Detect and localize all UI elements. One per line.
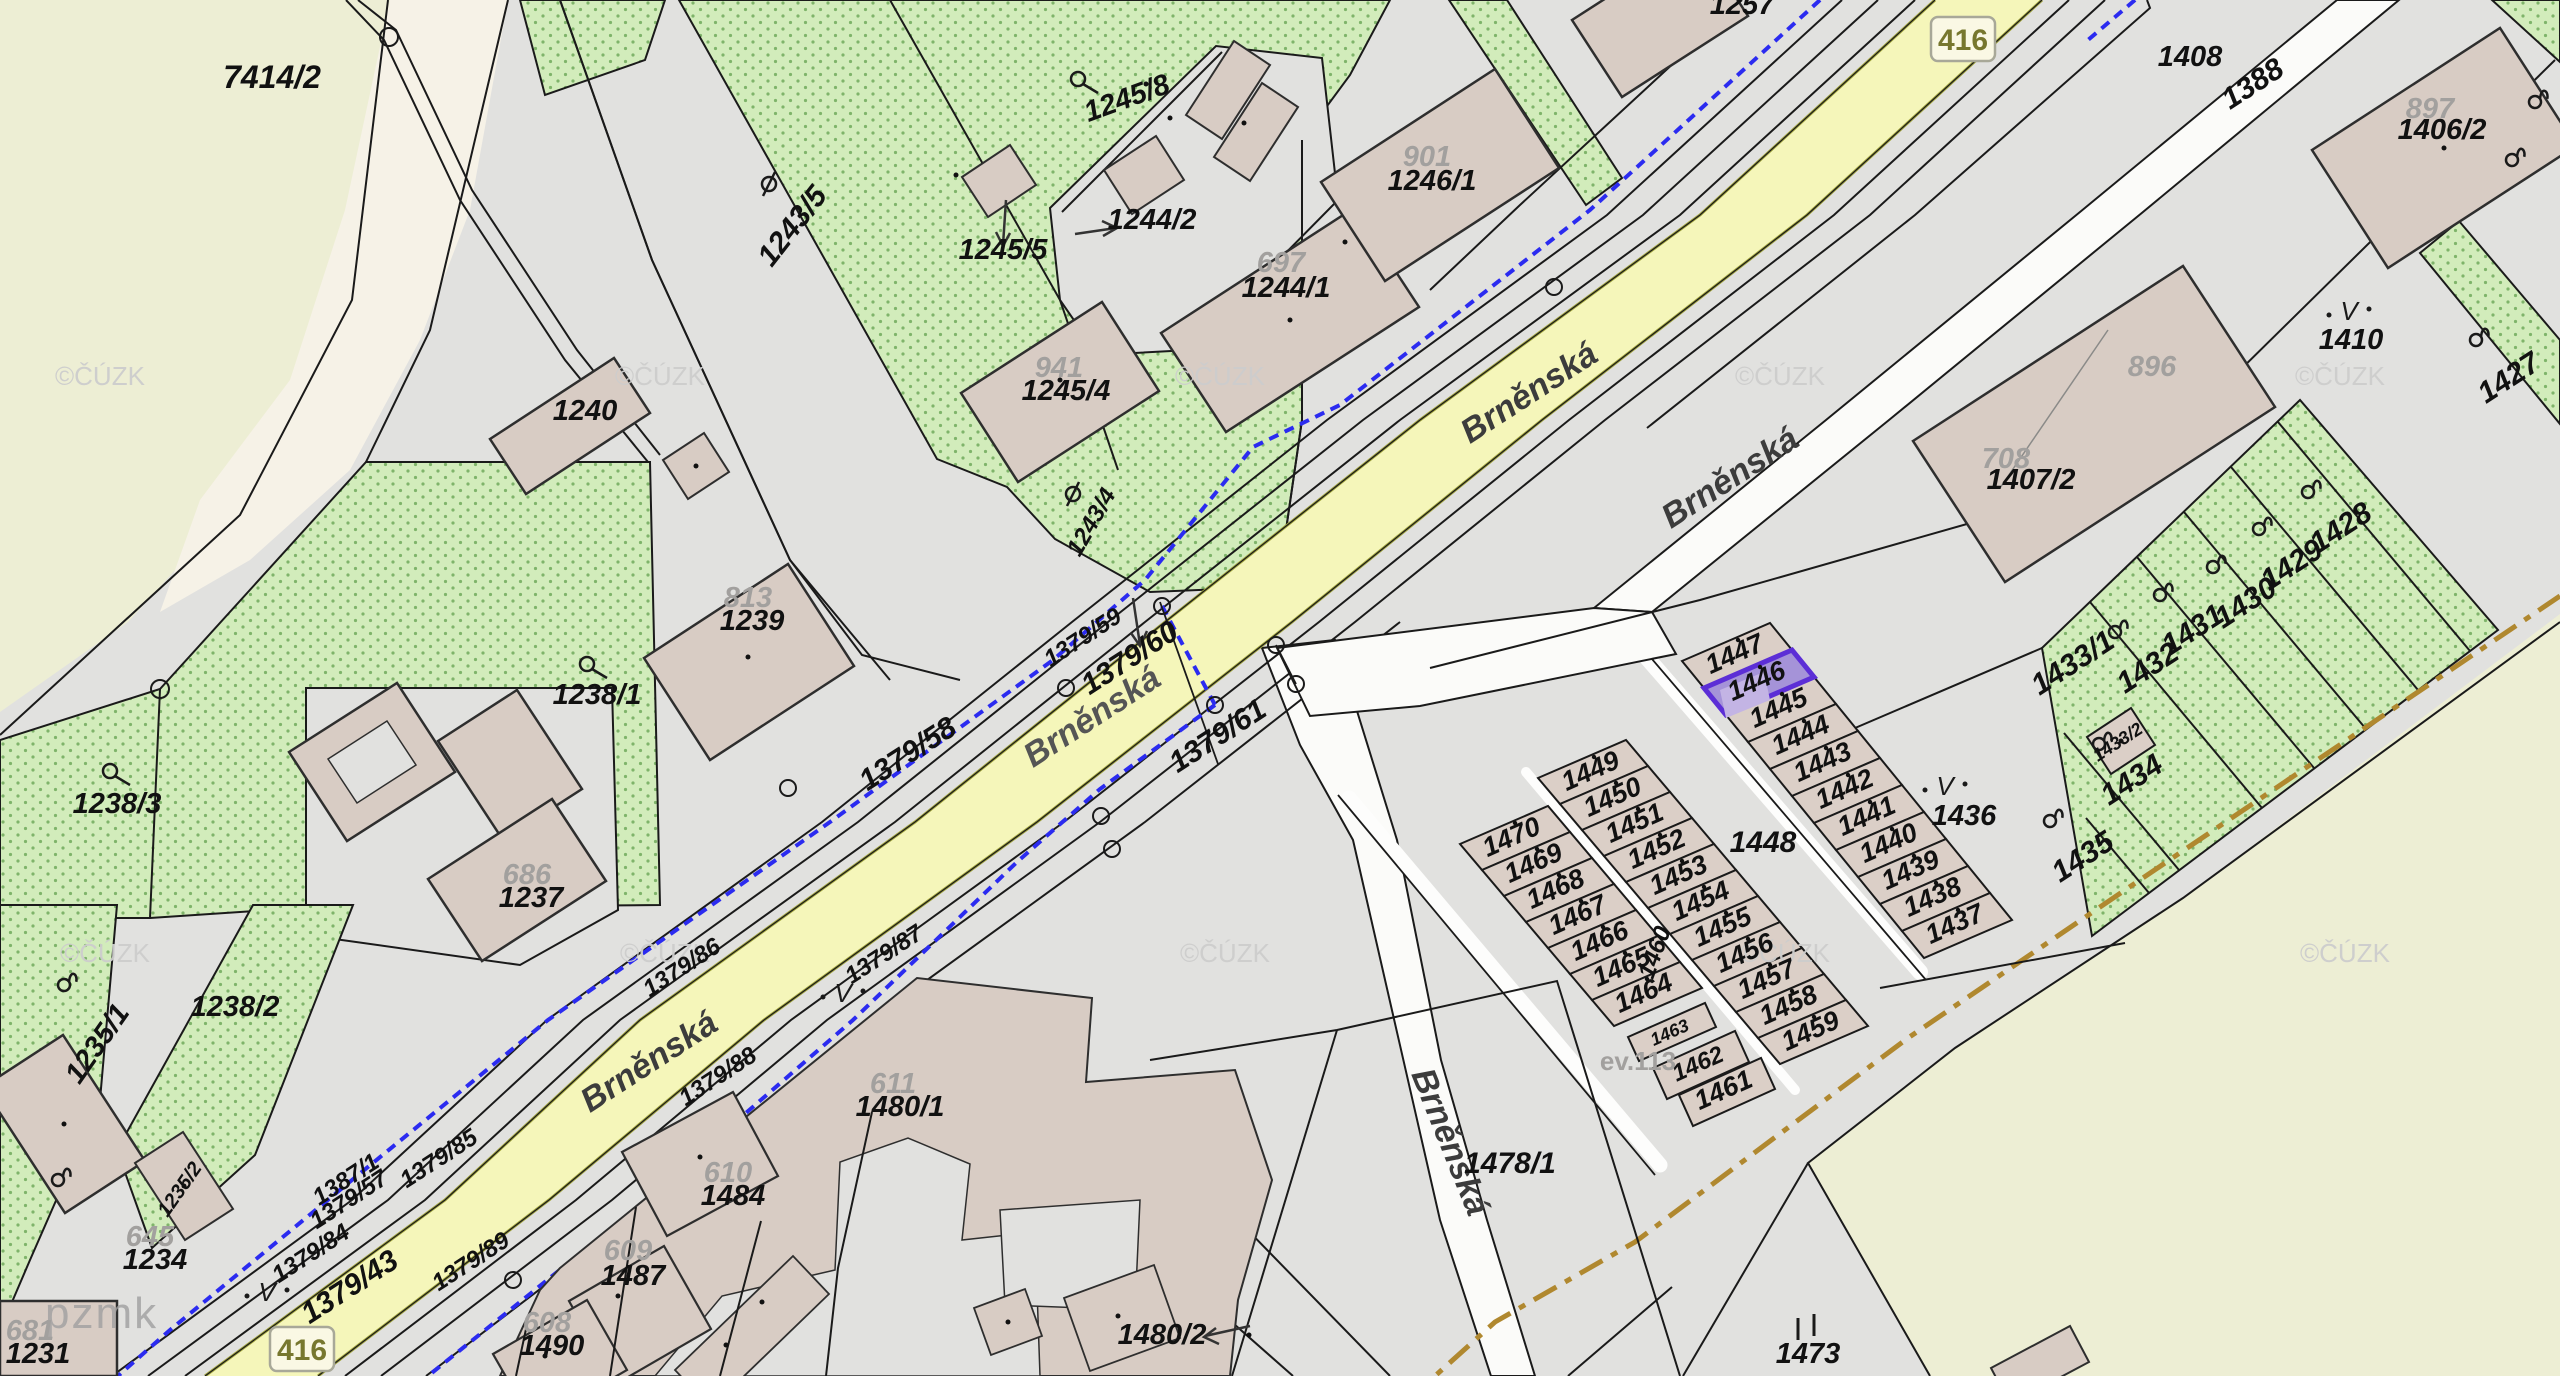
svg-text:V: V <box>2340 296 2360 326</box>
svg-text:1231: 1231 <box>6 1338 71 1370</box>
svg-text:ev.113: ev.113 <box>1600 1046 1676 1076</box>
svg-text:©ČÚZK: ©ČÚZK <box>1735 361 1826 391</box>
svg-text:1238/3: 1238/3 <box>73 788 162 820</box>
svg-text:1408: 1408 <box>2158 41 2223 73</box>
svg-text:1473: 1473 <box>1776 1338 1841 1370</box>
svg-text:1238/1: 1238/1 <box>553 679 642 711</box>
svg-text:416: 416 <box>1938 24 1988 57</box>
svg-text:1244/1: 1244/1 <box>1242 272 1331 304</box>
svg-text:1239: 1239 <box>720 605 785 637</box>
svg-text:416: 416 <box>277 1334 327 1367</box>
svg-text:pzmk: pzmk <box>45 1289 158 1338</box>
svg-text:1234: 1234 <box>123 1244 188 1276</box>
svg-text:©ČÚZK: ©ČÚZK <box>1175 361 1266 391</box>
svg-text:V: V <box>258 1277 278 1307</box>
svg-text:©ČÚZK: ©ČÚZK <box>615 361 706 391</box>
svg-text:1490: 1490 <box>520 1330 585 1362</box>
svg-text:1478/1: 1478/1 <box>1464 1147 1556 1180</box>
svg-text:©ČÚZK: ©ČÚZK <box>55 361 146 391</box>
svg-text:©ČÚZK: ©ČÚZK <box>2300 938 2391 968</box>
svg-text:1410: 1410 <box>2319 324 2384 356</box>
svg-text:7414/2: 7414/2 <box>223 59 321 95</box>
svg-text:1237: 1237 <box>499 882 565 914</box>
svg-text:V: V <box>1936 771 1956 801</box>
svg-text:1240: 1240 <box>553 395 618 427</box>
svg-text:1448: 1448 <box>1730 826 1797 859</box>
svg-text:1480/1: 1480/1 <box>856 1091 945 1123</box>
svg-text:©ČÚZK: ©ČÚZK <box>2295 361 2386 391</box>
svg-text:1244/2: 1244/2 <box>1108 204 1197 236</box>
svg-text:1257: 1257 <box>1710 0 1776 21</box>
svg-text:896: 896 <box>2128 351 2177 383</box>
svg-text:1436: 1436 <box>1932 800 1997 832</box>
svg-text:1480/2: 1480/2 <box>1118 1319 1207 1351</box>
svg-text:1238/2: 1238/2 <box>191 991 280 1023</box>
svg-text:1245/5: 1245/5 <box>959 234 1049 266</box>
svg-text:©ČÚZK: ©ČÚZK <box>1180 938 1271 968</box>
svg-text:1245/4: 1245/4 <box>1022 375 1111 407</box>
svg-text:1407/2: 1407/2 <box>1987 464 2076 496</box>
svg-text:1484: 1484 <box>701 1180 766 1212</box>
svg-text:1406/2: 1406/2 <box>2398 114 2487 146</box>
svg-text:©ČÚZK: ©ČÚZK <box>60 938 151 968</box>
svg-text:1487: 1487 <box>601 1260 667 1292</box>
svg-text:1246/1: 1246/1 <box>1388 165 1477 197</box>
